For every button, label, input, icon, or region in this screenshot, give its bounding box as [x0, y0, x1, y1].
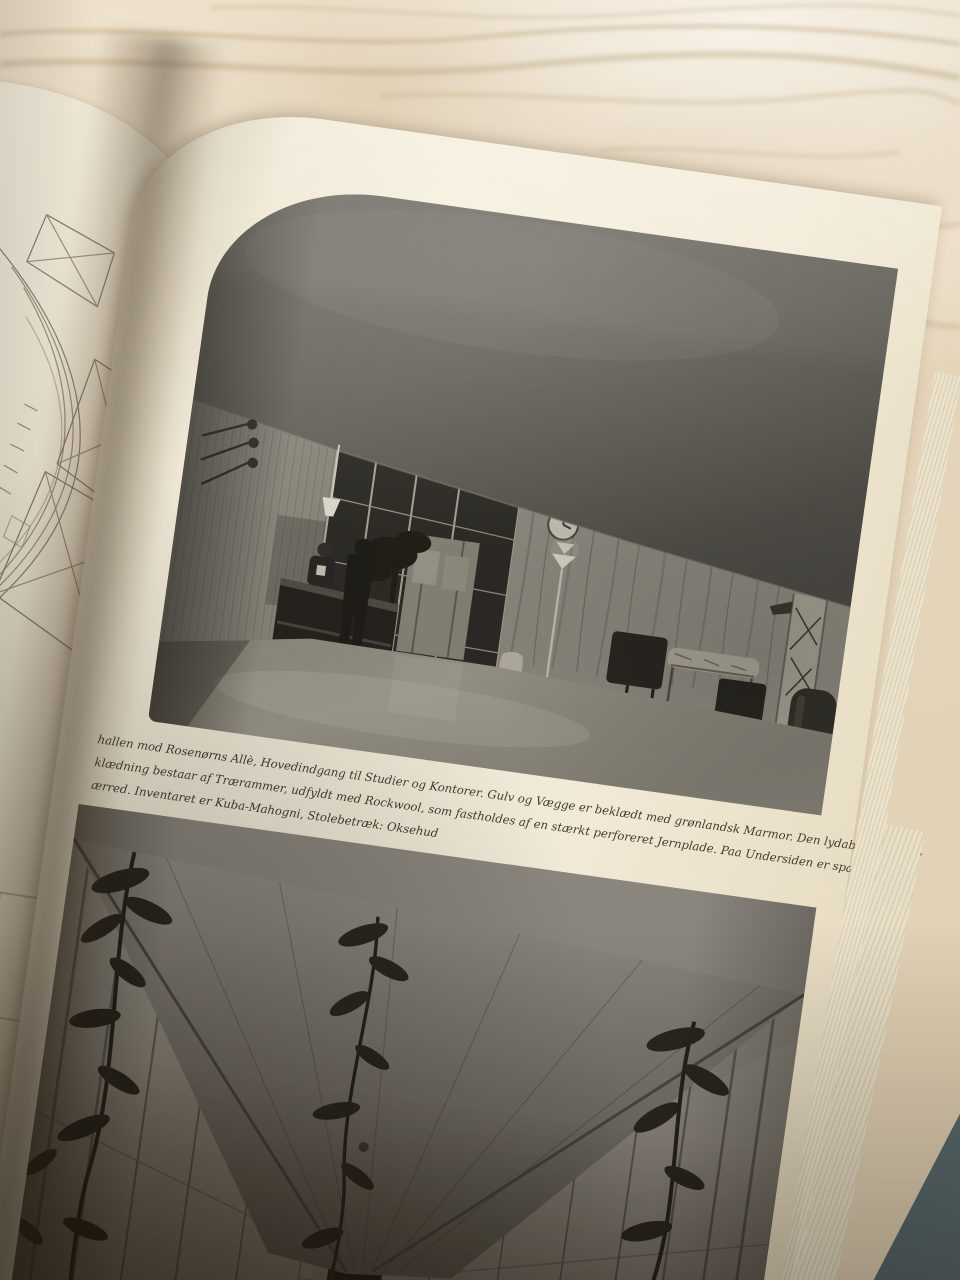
photo-shading: [148, 174, 898, 815]
foyer-photo: [148, 174, 898, 815]
photo-of-open-book: hallen mod Rosenørns Allè, Hovedindgang …: [0, 0, 960, 1280]
right-page: hallen mod Rosenørns Allè, Hovedindgang …: [0, 95, 942, 1280]
